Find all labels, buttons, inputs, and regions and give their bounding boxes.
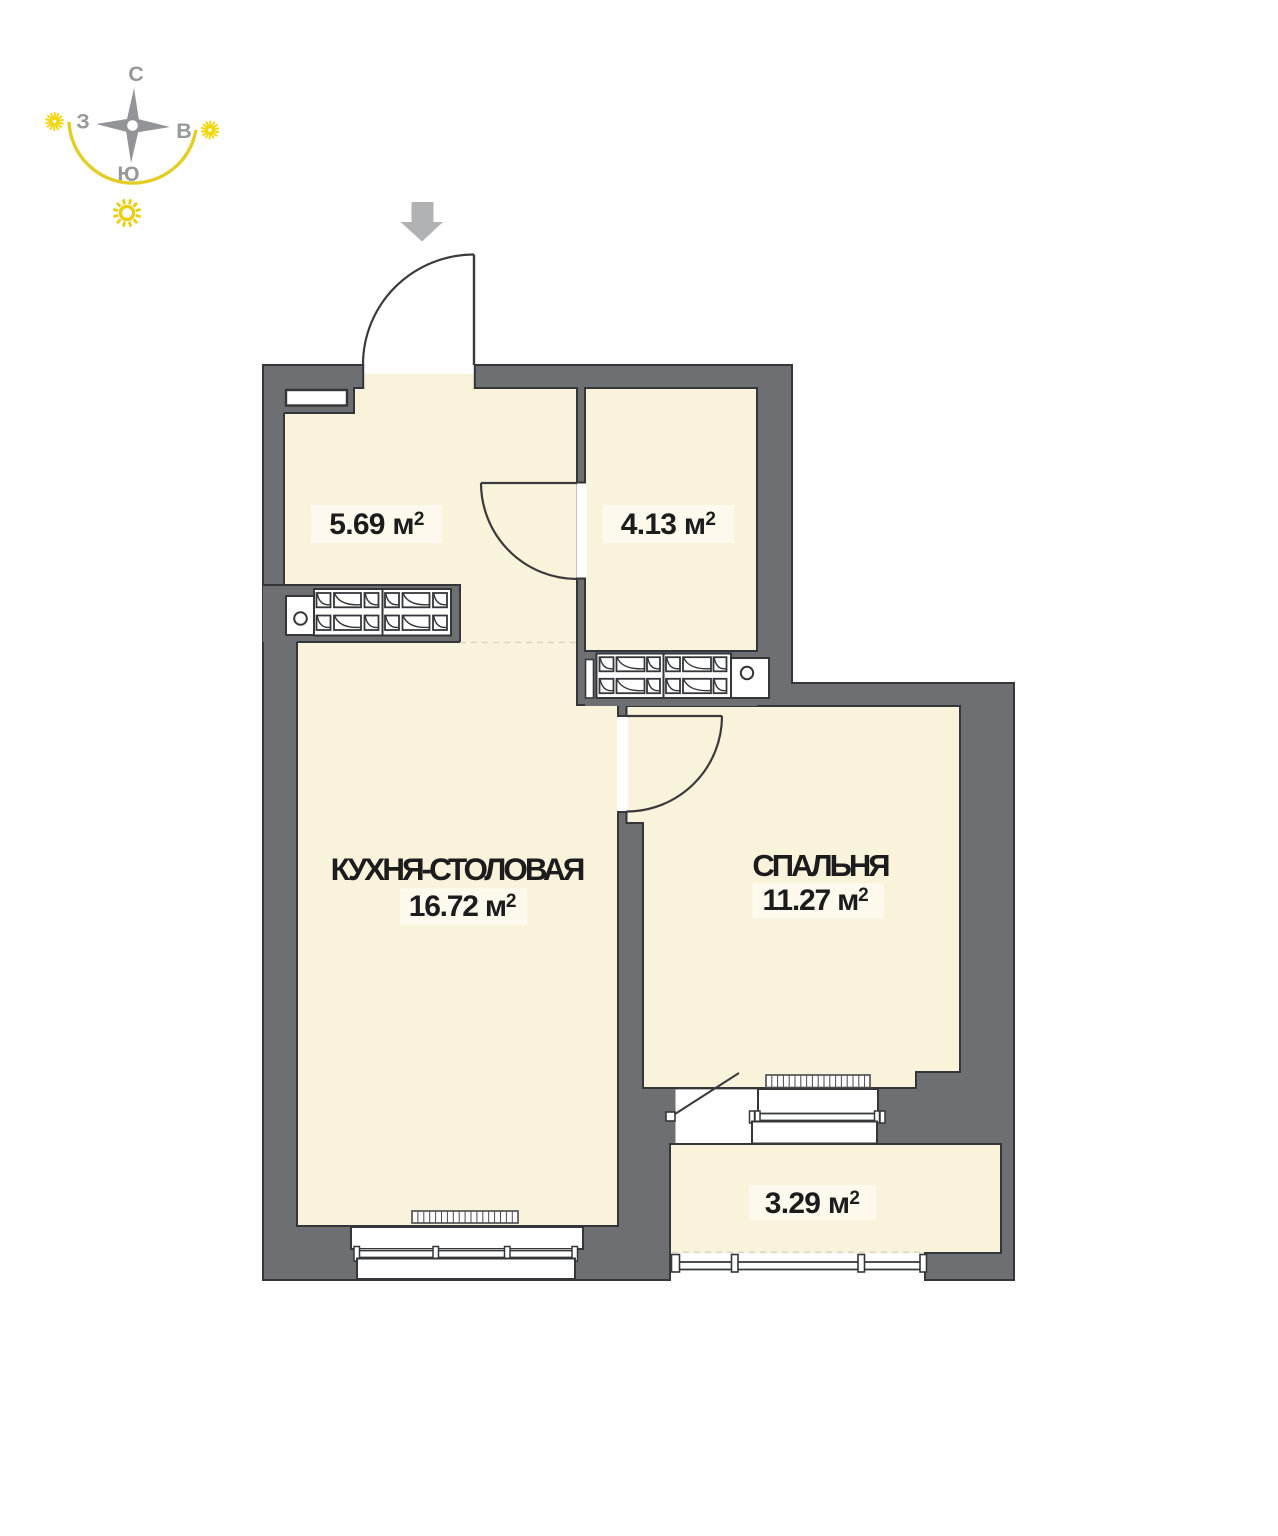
svg-text:З: З bbox=[76, 110, 89, 134]
svg-text:В: В bbox=[176, 119, 192, 143]
svg-text:С: С bbox=[128, 62, 144, 86]
svg-text:СПАЛЬНЯ: СПАЛЬНЯ bbox=[752, 848, 889, 883]
svg-text:4.13 м2: 4.13 м2 bbox=[621, 508, 716, 541]
svg-text:5.69 м2: 5.69 м2 bbox=[329, 508, 424, 541]
svg-text:11.27 м2: 11.27 м2 bbox=[763, 884, 869, 917]
svg-text:КУХНЯ-СТОЛОВАЯ: КУХНЯ-СТОЛОВАЯ bbox=[331, 851, 584, 887]
svg-text:3.29 м2: 3.29 м2 bbox=[765, 1187, 860, 1220]
svg-text:16.72 м2: 16.72 м2 bbox=[409, 890, 516, 923]
